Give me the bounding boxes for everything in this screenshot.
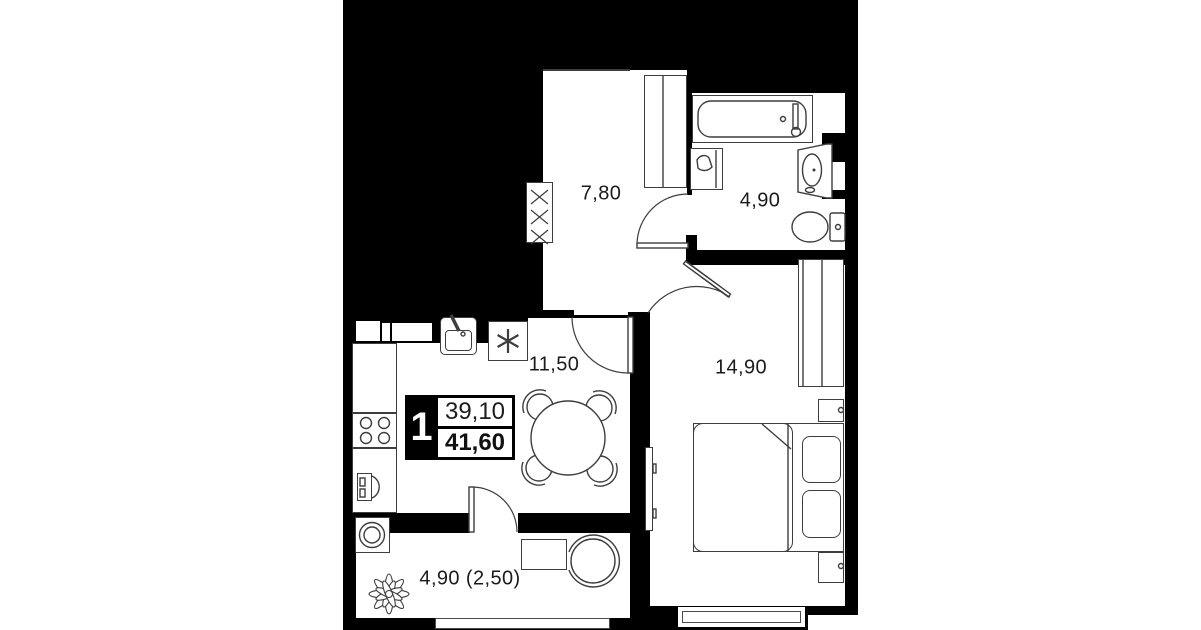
hallway-area-label: 7,80 — [581, 183, 622, 206]
fridge — [488, 321, 528, 361]
kitchen-area-label: 11,50 — [529, 354, 580, 377]
floorplan-screenshot: 7,80 4,90 11,50 14,90 4,90 (2,50) 1 39,1… — [0, 0, 1201, 630]
pillow — [802, 436, 841, 483]
kitchen-neck-floor — [528, 318, 630, 343]
wall-door-post — [686, 235, 697, 265]
living-area-value: 39,10 — [438, 398, 512, 426]
balcony-doorway — [470, 513, 518, 533]
facade-ledge — [808, 615, 858, 630]
kitchen-sink-bowl — [445, 330, 472, 351]
bathroom-area-label: 4,90 — [740, 190, 781, 213]
tv-panel — [645, 447, 653, 531]
bedroom-window-frame — [682, 611, 801, 623]
nightstand-top — [818, 399, 844, 422]
water-heater — [357, 473, 372, 501]
balcony-railing — [435, 618, 610, 629]
hall-wardrobe — [644, 75, 687, 188]
wall-hall-kitchen — [526, 310, 574, 318]
kitchen-cabinet-block — [356, 321, 380, 341]
duct-block-lower — [822, 190, 845, 199]
bedroom-wardrobe — [798, 259, 844, 387]
area-badge: 1 39,10 41,60 — [405, 395, 515, 460]
bedroom-area-label: 14,90 — [715, 357, 767, 380]
kitchen-cabinet-block — [392, 323, 432, 341]
counter-divider — [352, 412, 397, 414]
bed-blanket — [693, 423, 793, 552]
balcony-washer — [355, 517, 390, 553]
kitchen-cabinet-block — [382, 323, 390, 341]
balcony-area-label: 4,90 (2,50) — [419, 568, 520, 591]
shoe-cabinet — [526, 182, 553, 243]
wall-corner-stub — [628, 312, 650, 322]
pillow — [802, 490, 841, 538]
entry-wall-line — [543, 69, 630, 71]
bath-washer-box — [690, 148, 723, 190]
balcony-table — [521, 539, 567, 570]
nightstand-bottom — [818, 552, 844, 583]
duct-block-upper — [822, 133, 845, 162]
bathtub — [692, 95, 813, 143]
rooms-count: 1 — [405, 398, 438, 457]
total-area-value: 41,60 — [438, 429, 512, 457]
counter-divider — [352, 447, 397, 449]
